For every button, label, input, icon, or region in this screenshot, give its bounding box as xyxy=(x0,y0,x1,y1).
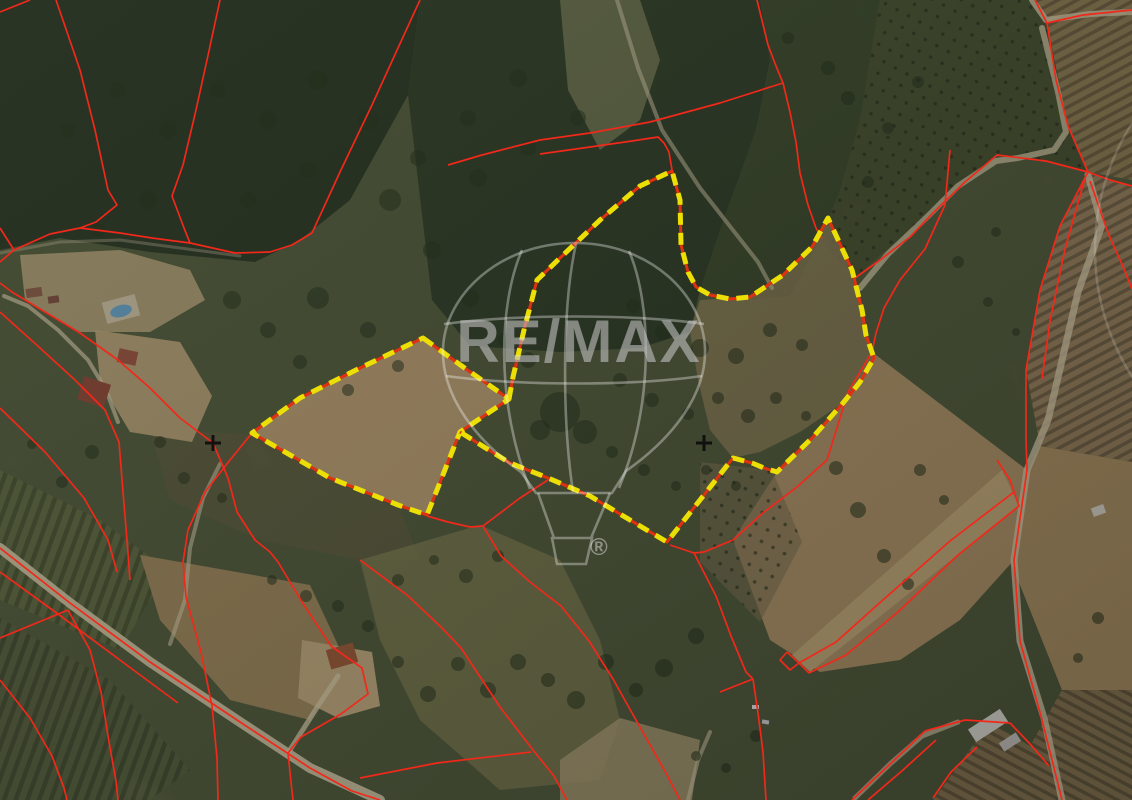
satellite-map[interactable]: RE/MAX ® xyxy=(0,0,1132,800)
terrain-shading xyxy=(0,0,1132,800)
map-canvas xyxy=(0,0,1132,800)
